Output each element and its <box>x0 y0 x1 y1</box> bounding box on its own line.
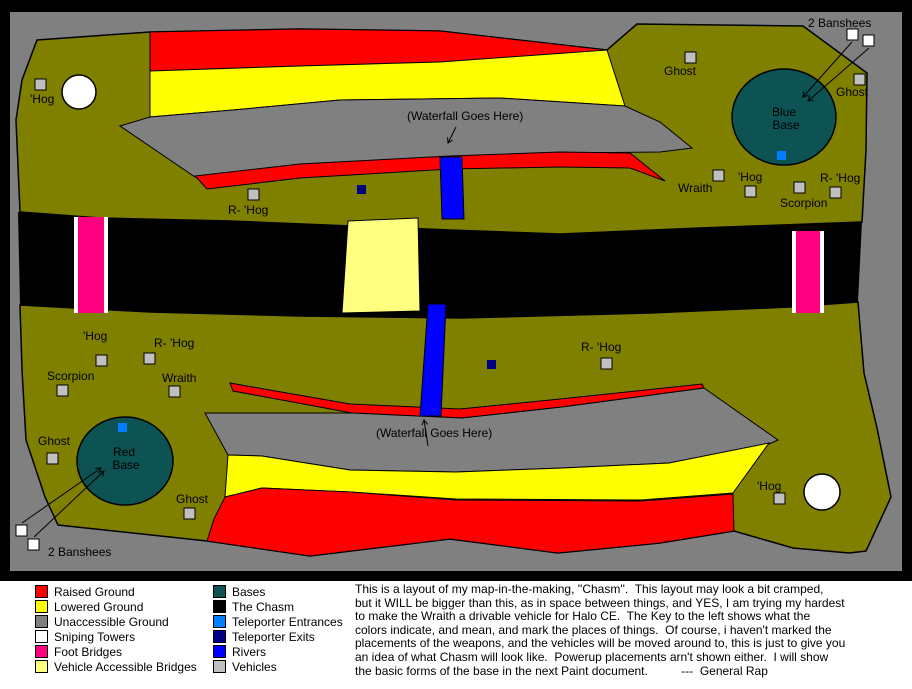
vehicle-marker <box>601 358 612 369</box>
vehicle-marker <box>854 74 865 85</box>
map-label: 2 Banshees <box>48 545 111 559</box>
map-label: R- 'Hog <box>154 336 194 350</box>
legend-label: Teleporter Exits <box>232 630 315 644</box>
vehicle-marker <box>96 355 107 366</box>
legend-item: Rivers <box>213 644 343 659</box>
legend-item: Teleporter Exits <box>213 629 343 644</box>
legend-item: Unaccessible Ground <box>35 614 197 629</box>
river-north <box>440 157 464 219</box>
sniping-tower-northwest <box>62 75 96 109</box>
vehicle-marker <box>144 353 155 364</box>
map-label: Red <box>113 445 135 459</box>
legend-label: Sniping Towers <box>54 630 135 644</box>
legend-item: Bases <box>213 584 343 599</box>
vehicle-marker <box>47 453 58 464</box>
description-line: an idea of what Chasm will look like. Po… <box>355 651 907 665</box>
legend-right-column: BasesThe ChasmTeleporter EntrancesTelepo… <box>213 584 343 674</box>
legend-color-chip <box>213 615 226 628</box>
map-label: Scorpion <box>47 369 94 383</box>
teleporter-exit-marker <box>357 185 366 194</box>
legend-item: Teleporter Entrances <box>213 614 343 629</box>
paint-document: 'HogR- 'HogGhost2 BansheesGhostWraith'Ho… <box>0 0 912 689</box>
description-line: This is a layout of my map-in-the-making… <box>355 583 907 597</box>
legend-left-column: Raised GroundLowered GroundUnaccessible … <box>35 584 197 674</box>
legend-color-chip <box>213 630 226 643</box>
legend-label: Vehicle Accessible Bridges <box>54 660 197 674</box>
map-label: 'Hog <box>83 329 107 343</box>
legend-color-chip <box>35 660 48 673</box>
map-label: Blue <box>772 105 796 119</box>
chasm-map-drawing: 'HogR- 'HogGhost2 BansheesGhostWraith'Ho… <box>0 0 912 581</box>
map-label: R- 'Hog <box>581 340 621 354</box>
teleporter-entrance-marker <box>777 151 786 160</box>
legend-label: Foot Bridges <box>54 645 122 659</box>
description-line: placements of the weapons, and the vehic… <box>355 637 907 651</box>
map-label: 'Hog <box>30 92 54 106</box>
banshee-marker <box>847 29 858 40</box>
legend-label: Raised Ground <box>54 585 135 599</box>
legend-label: Unaccessible Ground <box>54 615 169 629</box>
banshee-marker <box>28 539 39 550</box>
legend-label: Lowered Ground <box>54 600 143 614</box>
banshee-marker <box>863 35 874 46</box>
legend-color-chip <box>35 645 48 658</box>
vehicle-marker <box>745 186 756 197</box>
map-label: Ghost <box>664 64 697 78</box>
vehicle-marker <box>35 79 46 90</box>
legend-color-chip <box>35 615 48 628</box>
map-label: Wraith <box>162 371 196 385</box>
description-line: the basic forms of the base in the next … <box>355 665 907 679</box>
legend-color-chip <box>35 585 48 598</box>
vehicle-marker <box>248 189 259 200</box>
vehicle-marker <box>713 170 724 181</box>
legend-label: Teleporter Entrances <box>232 615 343 629</box>
vehicle-marker <box>169 386 180 397</box>
legend-label: Bases <box>232 585 265 599</box>
legend-item: Vehicles <box>213 659 343 674</box>
map-label: Base <box>112 458 140 472</box>
vehicle-marker <box>794 182 805 193</box>
legend-color-chip <box>213 645 226 658</box>
map-label: R- 'Hog <box>228 203 268 217</box>
map-label: Scorpion <box>780 196 827 210</box>
legend-item: Vehicle Accessible Bridges <box>35 659 197 674</box>
sniping-tower-southeast <box>804 474 840 510</box>
map-description: This is a layout of my map-in-the-making… <box>355 583 907 678</box>
map-label: 'Hog <box>757 479 781 493</box>
map-label: (Waterfall Goes Here) <box>407 109 523 123</box>
legend-color-chip <box>213 660 226 673</box>
map-label: Ghost <box>836 85 869 99</box>
map-label: (Waterfall Goes Here) <box>376 426 492 440</box>
map-label: Wraith <box>678 181 712 195</box>
legend-color-chip <box>213 600 226 613</box>
vehicle-marker <box>774 493 785 504</box>
vehicle-marker <box>184 508 195 519</box>
foot-bridge-west <box>78 217 104 313</box>
map-label: Ghost <box>176 492 209 506</box>
legend-item: Lowered Ground <box>35 599 197 614</box>
legend-color-chip <box>213 585 226 598</box>
teleporter-exit-marker <box>487 360 496 369</box>
vehicle-marker <box>685 52 696 63</box>
legend-label: The Chasm <box>232 600 294 614</box>
foot-bridge-east <box>796 231 820 313</box>
legend-item: Foot Bridges <box>35 644 197 659</box>
legend-label: Rivers <box>232 645 266 659</box>
description-line: colors indicate, and mean, and mark the … <box>355 624 907 638</box>
legend-item: Raised Ground <box>35 584 197 599</box>
map-label: Ghost <box>38 434 71 448</box>
legend-item: The Chasm <box>213 599 343 614</box>
map-label: R- 'Hog <box>820 171 860 185</box>
map-label: 'Hog <box>738 170 762 184</box>
legend-item: Sniping Towers <box>35 629 197 644</box>
legend-color-chip <box>35 600 48 613</box>
vehicle-bridge <box>342 218 420 313</box>
legend-color-chip <box>35 630 48 643</box>
banshee-marker <box>16 525 27 536</box>
vehicle-marker <box>57 385 68 396</box>
map-label: 2 Banshees <box>808 16 871 30</box>
legend-label: Vehicles <box>232 660 277 674</box>
map-label: Base <box>772 118 800 132</box>
description-line: but it WILL be bigger than this, as in s… <box>355 597 907 611</box>
vehicle-marker <box>830 187 841 198</box>
description-line: to make the Wraith a drivable vehicle fo… <box>355 610 907 624</box>
teleporter-entrance-marker <box>118 423 127 432</box>
